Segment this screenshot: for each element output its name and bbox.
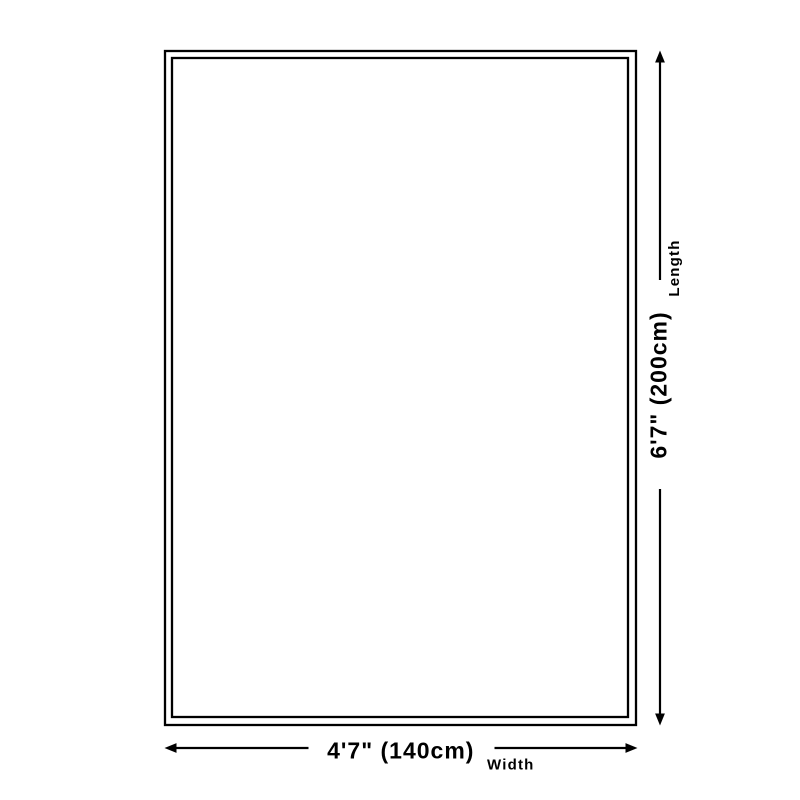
svg-text:6'7" (200cm): 6'7" (200cm) (646, 311, 672, 458)
svg-text:4'7" (140cm): 4'7" (140cm) (327, 738, 474, 764)
svg-text:Length: Length (666, 239, 683, 296)
svg-text:Width: Width (487, 757, 535, 774)
